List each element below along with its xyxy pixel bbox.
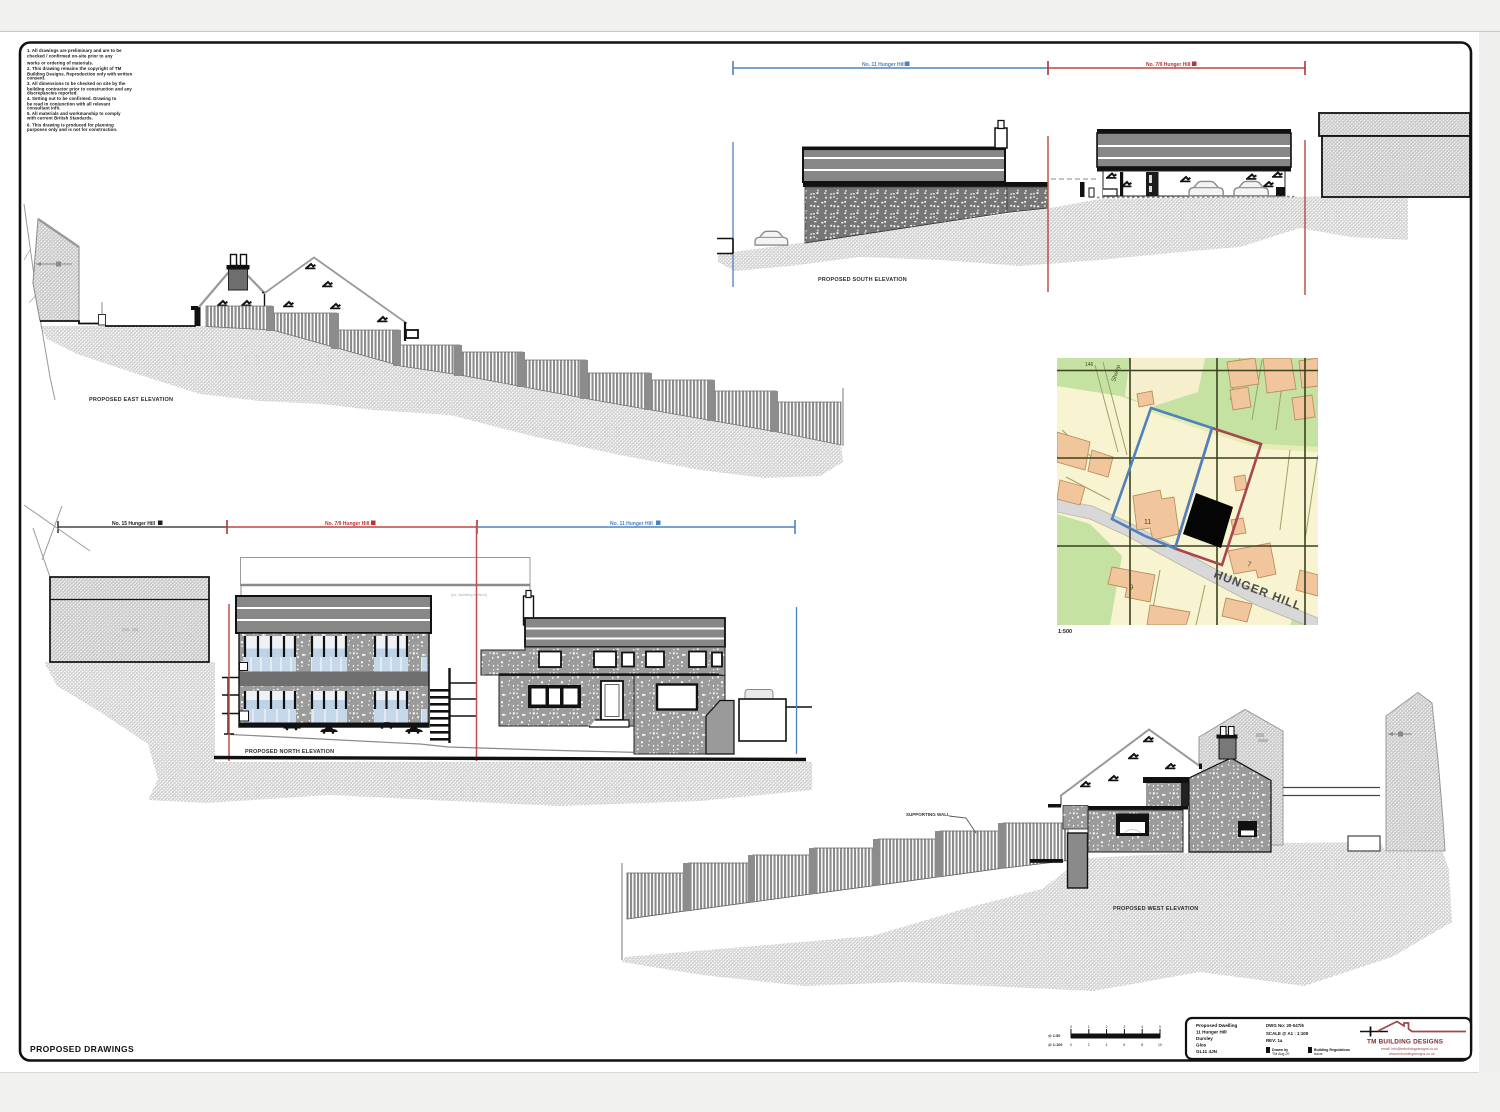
svg-text:TM Aug 20: TM Aug 20	[1272, 1052, 1289, 1056]
svg-text:www.tmbuildingdesigns.co.uk: www.tmbuildingdesigns.co.uk	[1389, 1052, 1435, 1056]
svg-text:discrepancies reported.: discrepancies reported.	[27, 91, 78, 96]
svg-text:consultant info.: consultant info.	[27, 106, 61, 111]
svg-text:PROPOSED NORTH ELEVATION: PROPOSED NORTH ELEVATION	[245, 749, 334, 755]
svg-text:Issue: Issue	[1314, 1052, 1323, 1056]
svg-text:No. 15 Hunger Hill: No. 15 Hunger Hill	[112, 521, 156, 527]
svg-text:2. This drawing remains the c: 2. This drawing remains the copyright of…	[27, 66, 122, 71]
svg-text:PROPOSED EAST ELEVATION: PROPOSED EAST ELEVATION	[89, 397, 173, 403]
svg-text:0: 0	[1070, 1025, 1072, 1029]
svg-text:Proposed Dwelling: Proposed Dwelling	[1196, 1023, 1238, 1028]
svg-text:11 Hunger Hill: 11 Hunger Hill	[1196, 1030, 1227, 1035]
svg-text:Dursley: Dursley	[1196, 1036, 1213, 1041]
svg-text:6: 6	[1123, 1043, 1125, 1047]
svg-text:10: 10	[1158, 1043, 1162, 1047]
svg-text:1: 1	[1088, 1025, 1090, 1029]
svg-text:SUPPORTING WALL: SUPPORTING WALL	[906, 812, 950, 817]
svg-text:2: 2	[1088, 1043, 1090, 1047]
svg-text:3. All dimensions to be check: 3. All dimensions to be checked on site …	[27, 81, 126, 86]
svg-text:4: 4	[1106, 1043, 1108, 1047]
svg-text:checked / confirmed on-site pr: checked / confirmed on-site prior to any	[27, 53, 113, 58]
svg-text:146: 146	[1085, 362, 1094, 368]
svg-text:1:500: 1:500	[1058, 629, 1072, 635]
svg-text:(ex. building behind): (ex. building behind)	[451, 592, 488, 597]
svg-text:2: 2	[1106, 1025, 1108, 1029]
svg-text:PROPOSED SOUTH ELEVATION: PROPOSED SOUTH ELEVATION	[818, 277, 907, 283]
svg-text:No. 7/9 Hunger Hill: No. 7/9 Hunger Hill	[325, 521, 370, 527]
svg-text:4. Setting out to be confirme: 4. Setting out to be confirmed. Drawing …	[27, 96, 117, 101]
svg-text:4: 4	[1141, 1025, 1143, 1029]
svg-text:REV: 1a: REV: 1a	[1266, 1038, 1283, 1043]
svg-text:SCALE @ A1 : 1:100: SCALE @ A1 : 1:100	[1266, 1031, 1309, 1036]
svg-text:@ 1:50: @ 1:50	[1048, 1034, 1060, 1038]
svg-text:No. 11 Hunger Hill: No. 11 Hunger Hill	[610, 521, 653, 527]
svg-text:@ 1:100: @ 1:100	[1048, 1043, 1062, 1047]
svg-text:consent.: consent.	[27, 76, 45, 81]
svg-text:No. 11 Hunger Hill: No. 11 Hunger Hill	[862, 62, 905, 68]
svg-text:email: info@tmbuildingdesigns.: email: info@tmbuildingdesigns.co.uk	[1381, 1047, 1438, 1051]
svg-text:(No. 15): (No. 15)	[122, 627, 139, 632]
svg-text:works or ordering of materials: works or ordering of materials.	[26, 61, 93, 66]
svg-text:3: 3	[1123, 1025, 1125, 1029]
svg-text:11: 11	[1144, 519, 1151, 526]
svg-text:PROPOSED WEST ELEVATION: PROPOSED WEST ELEVATION	[1113, 906, 1198, 912]
svg-text:5: 5	[1159, 1025, 1161, 1029]
svg-text:purposes only and is not for c: purposes only and is not for constructio…	[27, 127, 117, 132]
svg-text:with current British Standards: with current British Standards.	[26, 116, 93, 121]
svg-text:PROPOSED DRAWINGS: PROPOSED DRAWINGS	[30, 1044, 134, 1054]
svg-text:1. All drawings are prelimina: 1. All drawings are preliminary and are …	[27, 48, 122, 53]
svg-text:0: 0	[1070, 1043, 1072, 1047]
svg-text:Glos: Glos	[1196, 1043, 1207, 1048]
svg-text:DWG No: 20-047/6: DWG No: 20-047/6	[1266, 1023, 1304, 1028]
svg-text:GL11 4JN: GL11 4JN	[1196, 1049, 1218, 1054]
svg-text:No. 7/9 Hunger Hill: No. 7/9 Hunger Hill	[1146, 62, 1191, 68]
svg-text:8: 8	[1141, 1043, 1143, 1047]
svg-text:TM BUILDING DESIGNS: TM BUILDING DESIGNS	[1367, 1039, 1444, 1046]
